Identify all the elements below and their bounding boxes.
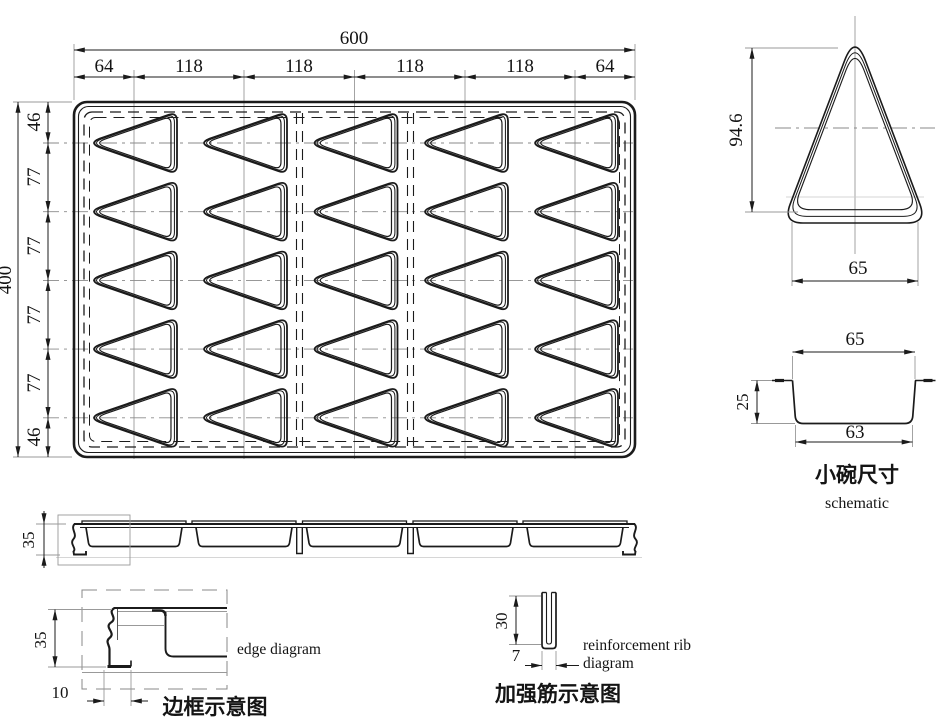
bowl-caption-en: schematic — [825, 495, 889, 512]
plan-view: 600 64 118 118 118 118 64 400 46 77 — [0, 28, 635, 459]
rib-channel-outer — [542, 593, 556, 649]
dim-top-segment-0: 64 — [95, 56, 115, 77]
rib-caption-en-line2: diagram — [583, 655, 634, 672]
edge-caption-en: edge diagram — [237, 641, 321, 658]
dim-edge-height: 35 — [31, 632, 50, 649]
dim-left-segment-1: 77 — [24, 168, 45, 187]
side-rib — [297, 528, 303, 554]
dim-rib-height: 30 — [492, 613, 511, 630]
edge-caption-zh: 边框示意图 — [163, 695, 268, 719]
dim-cavity-base-width: 65 — [849, 258, 868, 279]
dim-total-height: 400 — [0, 266, 16, 295]
dim-rib-width: 7 — [512, 646, 521, 665]
dim-cavity-height: 94.6 — [726, 113, 747, 146]
side-left-edge — [72, 524, 86, 555]
edge-detail-view: 35 10 edge diagram 边框示意图 — [31, 590, 321, 719]
dim-bowl-bottom-width: 63 — [846, 422, 865, 443]
dim-bowl-depth: 25 — [733, 394, 752, 411]
plan-top-dimensions: 600 64 118 118 118 118 64 — [74, 28, 635, 77]
dim-bowl-top-width: 65 — [846, 329, 865, 350]
plan-left-dimensions: 400 46 77 77 77 77 46 — [0, 102, 48, 457]
side-right-edge — [623, 524, 637, 555]
dim-left-segment-4: 77 — [24, 374, 45, 393]
bowl-caption-zh: 小碗尺寸 — [815, 463, 899, 487]
cavity-detail-view: 94.6 65 — [726, 16, 935, 286]
dim-top-segment-5: 64 — [596, 56, 616, 77]
dim-top-segment-4: 118 — [506, 56, 534, 77]
rib-caption-zh: 加强筋示意图 — [494, 682, 621, 706]
dim-top-segment-1: 118 — [175, 56, 203, 77]
rib-detail-view: 30 7 reinforcement rib diagram 加强筋示意图 — [492, 593, 691, 707]
rib-caption-en-line1: reinforcement rib — [583, 637, 691, 654]
dim-total-width: 600 — [340, 28, 369, 49]
dim-left-segment-0: 46 — [24, 113, 45, 132]
side-elevation-view: 35 — [19, 511, 642, 568]
dim-left-segment-3: 77 — [24, 306, 45, 325]
dim-edge-foot-width: 10 — [52, 683, 69, 702]
dim-left-segment-5: 46 — [24, 428, 45, 447]
edge-curl-profile — [108, 608, 115, 665]
dim-left-segment-2: 77 — [24, 237, 45, 256]
dim-side-height: 35 — [19, 532, 38, 549]
dim-top-segment-3: 118 — [396, 56, 424, 77]
side-rib — [408, 528, 414, 554]
technical-drawing: 600 64 118 118 118 118 64 400 46 77 — [0, 0, 944, 722]
dim-top-segment-2: 118 — [285, 56, 313, 77]
edge-wall-profile — [166, 612, 228, 657]
bowl-section-view: 65 25 63 小碗尺寸 schematic — [733, 329, 936, 512]
bowl-profile — [793, 381, 916, 424]
